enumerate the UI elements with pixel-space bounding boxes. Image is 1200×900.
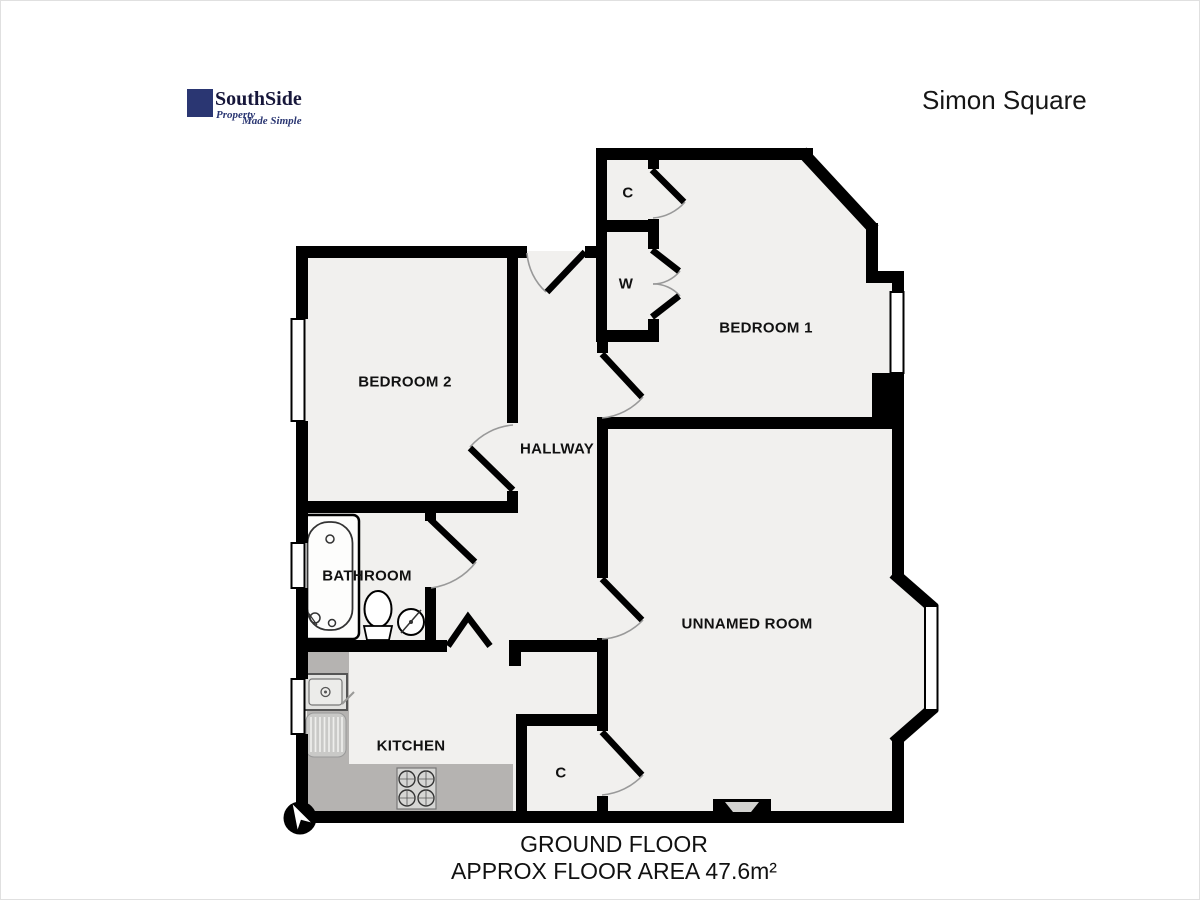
label-bedroom2: BEDROOM 2 [358, 374, 452, 391]
fireplace-icon [713, 799, 771, 814]
bathroom-sink-icon [398, 609, 424, 635]
window-bedroom1 [891, 292, 904, 373]
logo-name: SouthSide [215, 88, 302, 111]
area-caption: APPROX FLOOR AREA 47.6m² [414, 858, 814, 885]
label-unnamed-room: UNNAMED ROOM [681, 616, 812, 633]
label-closet-bottom: C [555, 765, 566, 782]
label-closet-top: C [622, 185, 633, 202]
label-bedroom1: BEDROOM 1 [719, 320, 813, 337]
floor-plan-drawing [1, 1, 1200, 900]
window-bathroom [292, 543, 305, 588]
window-kitchen [292, 679, 305, 734]
window-bedroom2 [292, 319, 305, 421]
hob-icon [397, 768, 436, 809]
floorplan-page: SouthSide Property Made Simple Simon Squ… [0, 0, 1200, 900]
label-hallway: HALLWAY [520, 441, 594, 458]
floor-caption: GROUND FLOOR [414, 831, 814, 858]
label-wardrobe: W [619, 276, 633, 293]
footer-captions: GROUND FLOOR APPROX FLOOR AREA 47.6m² [414, 831, 814, 885]
label-kitchen: KITCHEN [377, 738, 446, 755]
page-title: Simon Square [922, 85, 1087, 116]
logo-tagline-word2: Made Simple [242, 115, 302, 127]
logo-square-icon [187, 89, 213, 117]
window-bay [925, 606, 938, 710]
label-bathroom: BATHROOM [322, 568, 412, 585]
toilet-icon [364, 591, 392, 640]
